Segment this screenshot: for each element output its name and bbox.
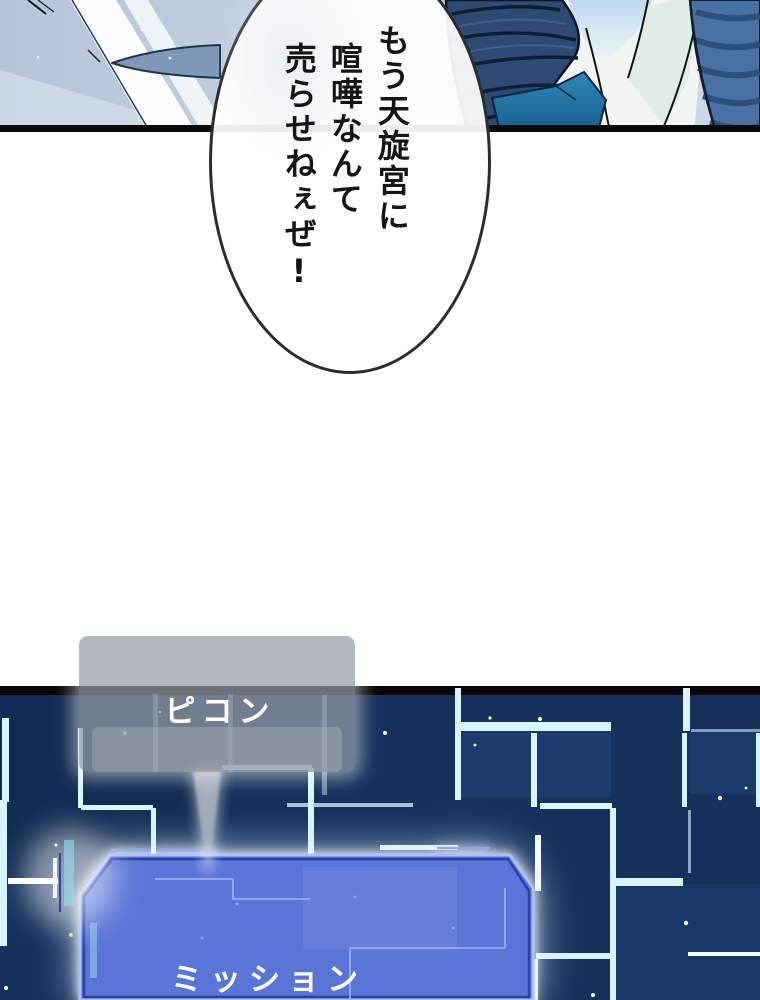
sfx-callout-box: ピコン (79, 636, 355, 772)
bubble-text-column-2: 喧嘩なんて (327, 42, 361, 217)
sfx-callout-box-lower (92, 727, 342, 772)
bubble-text-column-3: 売らせねぇぜ! (281, 42, 315, 293)
art-sparkle (112, 8, 115, 11)
art-sparkle (169, 57, 172, 60)
sfx-label: ピコン (79, 686, 355, 731)
mission-panel-label: ミッション (171, 954, 366, 999)
bubble-text-column-1: もう天旋宮に (374, 24, 408, 234)
manga-page: もう天旋宮に 喧嘩なんて 売らせねぇぜ! (0, 0, 760, 1000)
art-sparkle (37, 56, 40, 59)
art-sparkle (141, 29, 144, 32)
